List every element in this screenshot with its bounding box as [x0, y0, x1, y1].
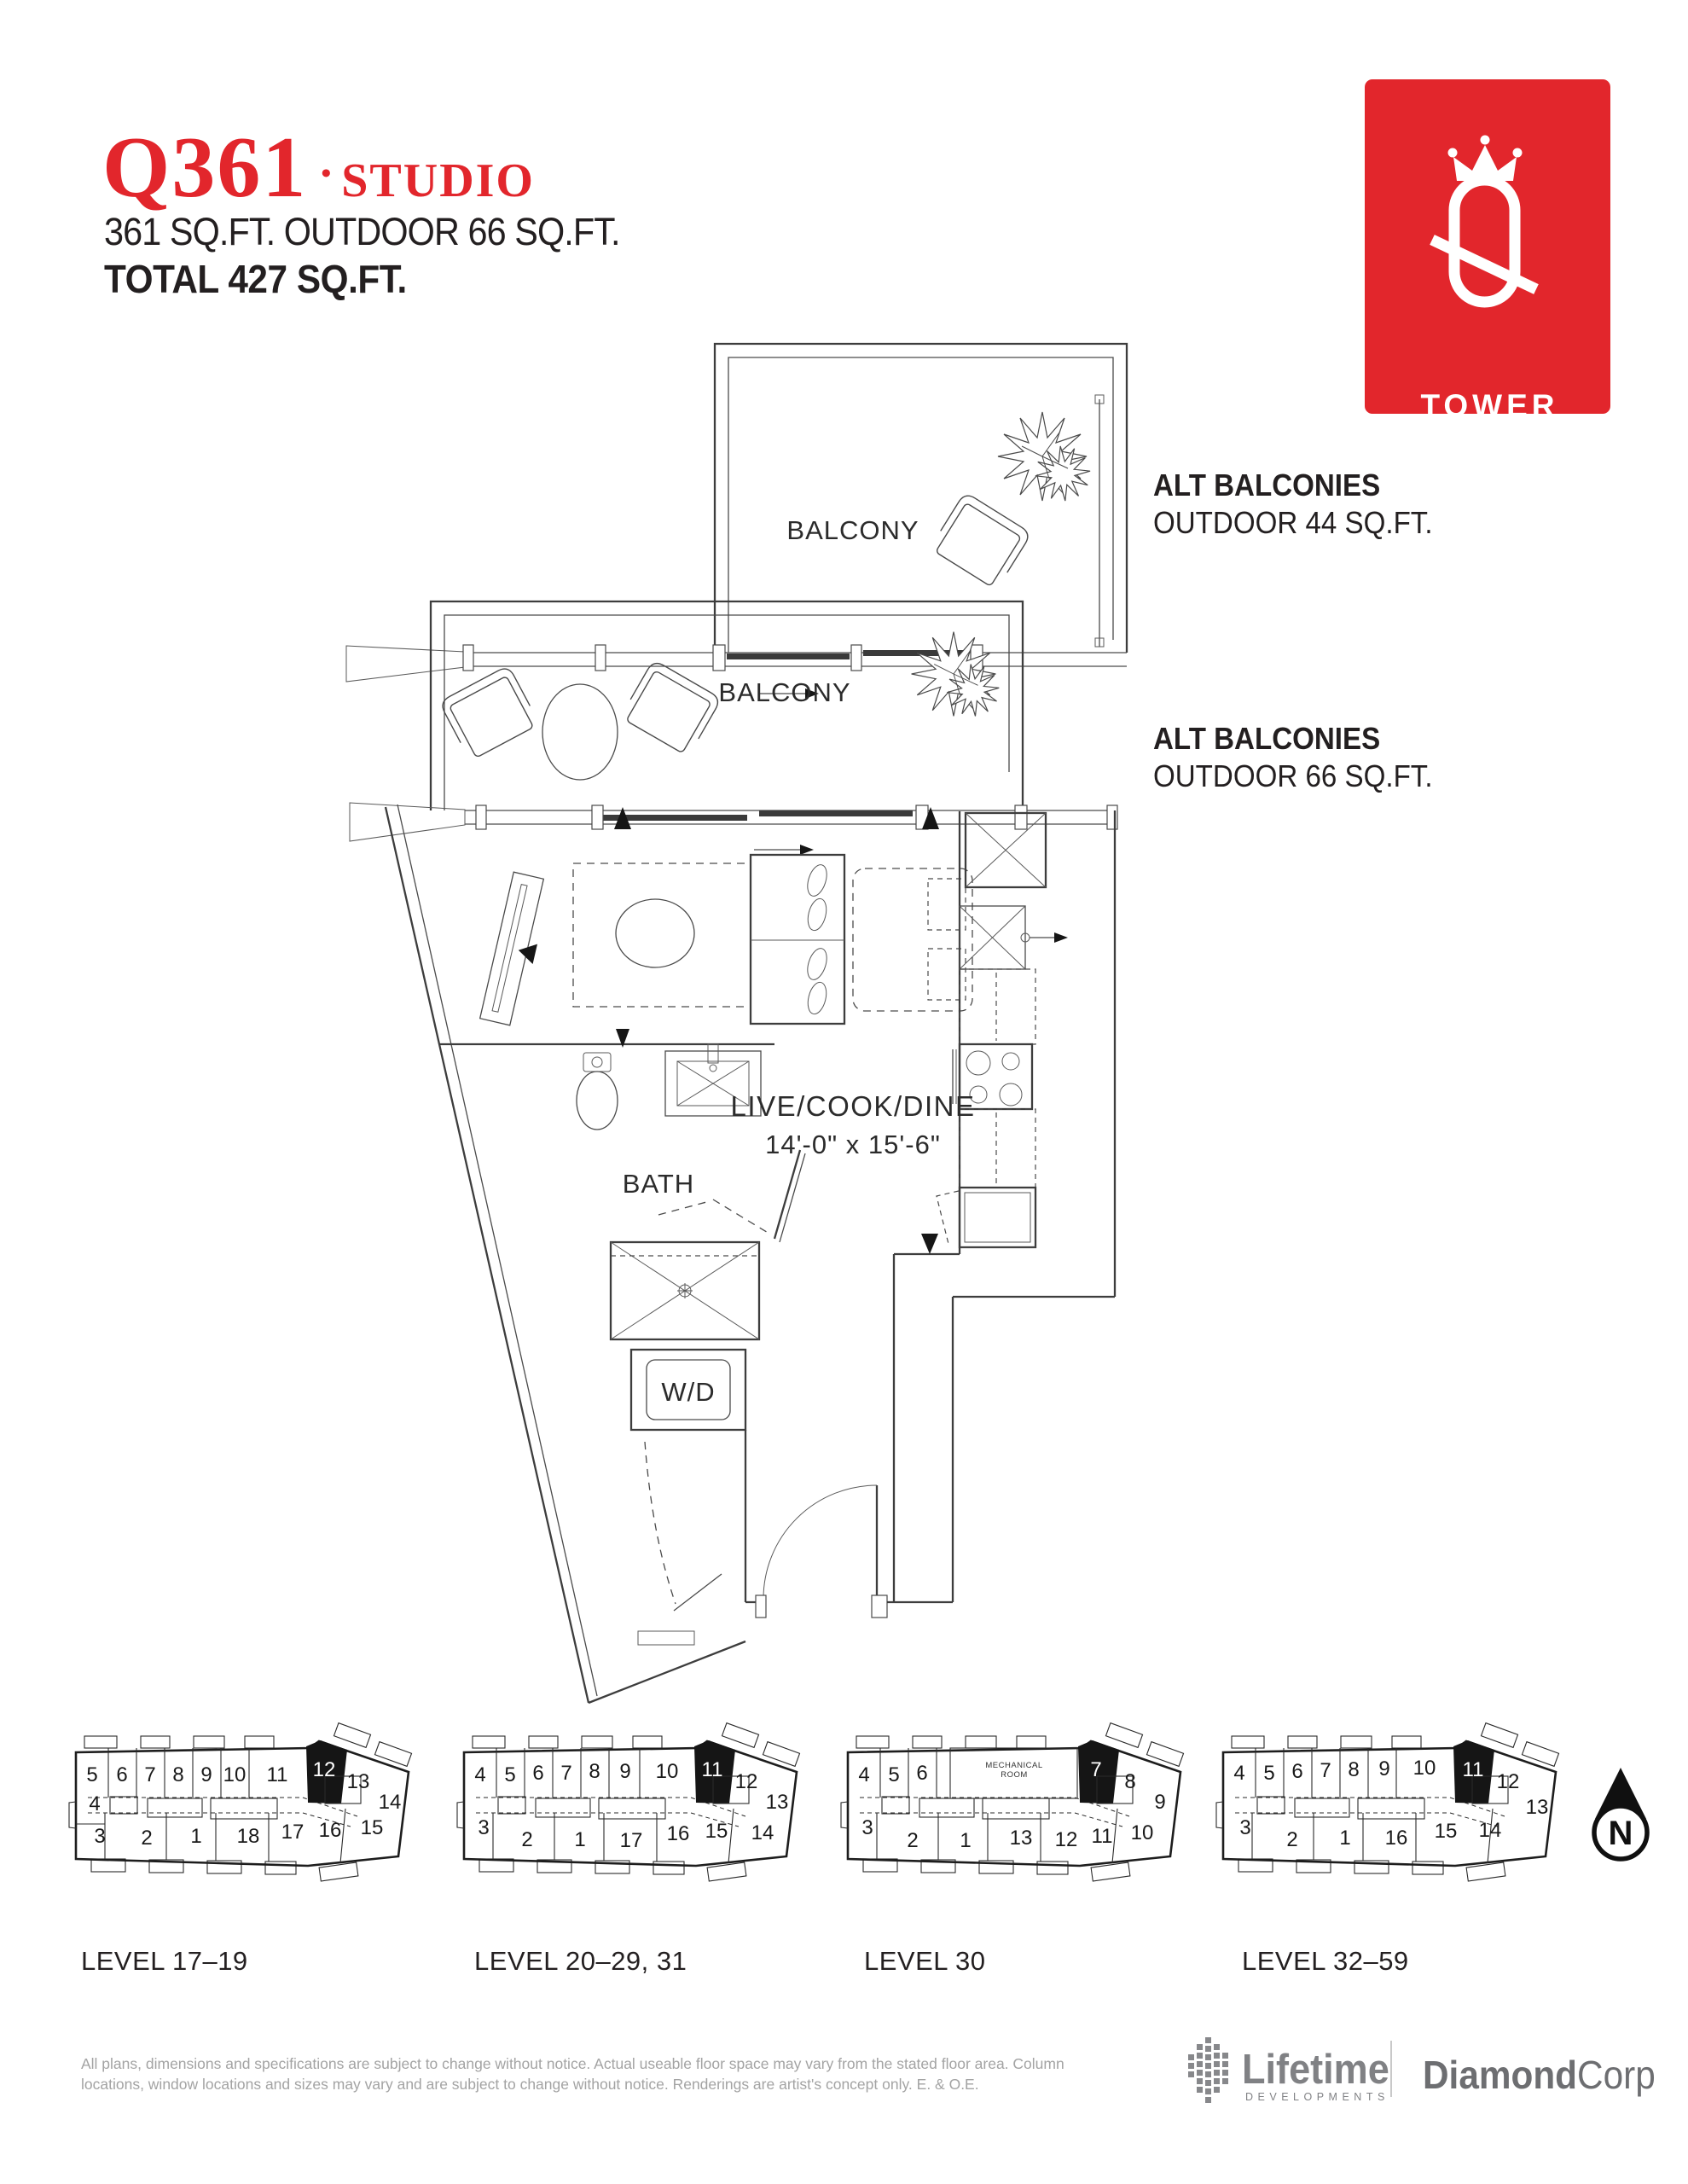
- svg-text:17: 17: [281, 1821, 305, 1844]
- svg-text:16: 16: [1385, 1827, 1408, 1850]
- keyplan-level-17-19: 5 6 7 8 9 10 11 12 13 14 4 3 2 1 18 17 1…: [69, 1723, 412, 1881]
- room-label: LIVE/COOK/DINE: [731, 1090, 976, 1122]
- svg-text:12: 12: [1055, 1828, 1078, 1851]
- svg-text:N: N: [1609, 1815, 1633, 1852]
- svg-text:1: 1: [190, 1825, 201, 1848]
- svg-text:3: 3: [1239, 1816, 1250, 1839]
- svg-text:11: 11: [1092, 1825, 1113, 1848]
- highlighted-unit: 11: [1463, 1758, 1484, 1781]
- qtower-crest-icon: [1365, 79, 1610, 414]
- svg-text:5: 5: [504, 1763, 515, 1786]
- svg-text:6: 6: [916, 1762, 927, 1785]
- svg-text:2: 2: [907, 1829, 918, 1852]
- svg-text:7: 7: [144, 1763, 155, 1786]
- level-label-3: LEVEL 30: [864, 1946, 985, 1976]
- alt-balcony-44-diagram: BALCONY: [346, 344, 1127, 699]
- alt-balcony-66-diagram: BALCONY: [350, 601, 1117, 855]
- level-label-4: LEVEL 32–59: [1242, 1946, 1409, 1976]
- laundry-label: W/D: [661, 1377, 715, 1407]
- svg-text:8: 8: [172, 1763, 183, 1786]
- svg-text:4: 4: [89, 1792, 100, 1815]
- svg-text:2: 2: [141, 1827, 152, 1850]
- svg-text:8: 8: [1348, 1758, 1359, 1781]
- svg-text:9: 9: [200, 1763, 212, 1786]
- mech-room-label: MECHANICAL: [985, 1761, 1042, 1770]
- svg-text:4: 4: [474, 1763, 485, 1786]
- svg-text:14: 14: [379, 1791, 402, 1814]
- highlighted-unit: 11: [702, 1758, 723, 1781]
- balcony-label-top: BALCONY: [786, 515, 919, 545]
- floorplan-sheet: BALCONY BALCONY: [0, 0, 1688, 2184]
- svg-text:14: 14: [751, 1821, 774, 1844]
- keyplan-level-30: MECHANICAL ROOM 4 5 6 7 8 9 3 2 1 13 12 …: [841, 1723, 1184, 1881]
- area-line: 361 SQ.FT. OUTDOOR 66 SQ.FT.: [104, 210, 620, 254]
- svg-text:ROOM: ROOM: [1001, 1770, 1028, 1780]
- chair-icon: [439, 665, 540, 761]
- tree-icon: [912, 632, 1008, 725]
- disclaimer-line-2: locations, window locations and sizes ma…: [81, 2075, 1164, 2095]
- disclaimer: All plans, dimensions and specifications…: [81, 2054, 1164, 2094]
- svg-text:7: 7: [1320, 1759, 1331, 1782]
- svg-text:15: 15: [705, 1820, 728, 1843]
- chair-icon: [930, 492, 1031, 590]
- svg-text:14: 14: [1479, 1819, 1502, 1842]
- svg-text:16: 16: [667, 1822, 690, 1845]
- slider-arrow-icon: [800, 845, 814, 855]
- svg-text:16: 16: [319, 1819, 342, 1842]
- svg-text:4: 4: [858, 1763, 869, 1786]
- svg-text:10: 10: [1413, 1757, 1436, 1780]
- keyplan-level-20-29-31: 4 5 6 7 8 9 10 11 12 13 3 2 1 17 16 15 1…: [457, 1723, 800, 1881]
- svg-text:13: 13: [1526, 1796, 1549, 1819]
- diamondcorp-logo: DiamondCorp: [1423, 2052, 1656, 2098]
- alt-balconies-44-label: ALT BALCONIES OUTDOOR 44 SQ.FT.: [1153, 467, 1433, 542]
- svg-text:15: 15: [1435, 1820, 1458, 1843]
- svg-text:4: 4: [1233, 1762, 1244, 1785]
- svg-text:10: 10: [223, 1763, 247, 1786]
- alt-balconies-66-label: ALT BALCONIES OUTDOOR 66 SQ.FT.: [1153, 720, 1433, 795]
- svg-text:15: 15: [361, 1816, 384, 1839]
- level-label-2: LEVEL 20–29, 31: [474, 1946, 687, 1976]
- svg-text:18: 18: [237, 1825, 260, 1848]
- svg-text:1: 1: [1339, 1827, 1350, 1850]
- svg-text:6: 6: [532, 1762, 543, 1785]
- svg-text:1: 1: [574, 1828, 585, 1851]
- unit-type: STUDIO: [341, 154, 535, 207]
- svg-text:2: 2: [521, 1828, 532, 1851]
- footer-divider: [1390, 2041, 1392, 2097]
- disclaimer-line-1: All plans, dimensions and specifications…: [81, 2054, 1164, 2075]
- north-arrow-icon: N: [1594, 1768, 1647, 1859]
- lifetime-sub-label: DEVELOPMENTS: [1245, 2091, 1389, 2103]
- page-title: Q361•STUDIO: [102, 118, 535, 218]
- svg-text:12: 12: [1497, 1770, 1520, 1793]
- svg-text:2: 2: [1286, 1828, 1297, 1851]
- svg-text:8: 8: [1124, 1770, 1135, 1793]
- svg-text:5: 5: [1263, 1762, 1274, 1785]
- svg-text:5: 5: [86, 1763, 97, 1786]
- svg-text:10: 10: [656, 1760, 679, 1783]
- svg-text:8: 8: [589, 1760, 600, 1783]
- level-label-1: LEVEL 17–19: [81, 1946, 248, 1976]
- svg-text:17: 17: [620, 1829, 643, 1852]
- lifetime-logo: Lifetime: [1242, 2046, 1389, 2094]
- svg-text:13: 13: [1010, 1827, 1033, 1850]
- svg-text:6: 6: [1291, 1760, 1302, 1783]
- svg-text:9: 9: [1378, 1757, 1389, 1780]
- keyplan-level-32-59: 4 5 6 7 8 9 10 11 12 13 3 2 1 16 15 14: [1216, 1723, 1559, 1881]
- highlighted-unit: 12: [313, 1758, 336, 1781]
- svg-text:3: 3: [478, 1816, 489, 1839]
- svg-text:13: 13: [766, 1791, 789, 1814]
- svg-text:7: 7: [560, 1762, 571, 1785]
- balcony-label-main: BALCONY: [718, 677, 850, 707]
- svg-text:9: 9: [1154, 1791, 1165, 1814]
- svg-text:13: 13: [347, 1770, 370, 1793]
- svg-text:9: 9: [619, 1760, 630, 1783]
- chair-icon: [620, 659, 722, 757]
- svg-text:1: 1: [960, 1829, 971, 1852]
- tv-panel: [480, 872, 552, 1027]
- main-unit-plan: LIVE/COOK/DINE 14'-0" x 15'-6" BATH W/D: [386, 804, 1115, 1703]
- svg-text:10: 10: [1131, 1821, 1154, 1844]
- title-dot: •: [307, 158, 341, 189]
- unit-code: Q361: [102, 119, 307, 216]
- svg-text:11: 11: [267, 1763, 288, 1786]
- tower-wordmark: TOWER: [1365, 388, 1610, 424]
- svg-text:5: 5: [888, 1763, 899, 1786]
- svg-text:12: 12: [735, 1770, 758, 1793]
- svg-text:6: 6: [116, 1763, 127, 1786]
- bath-label: BATH: [623, 1169, 694, 1199]
- svg-text:3: 3: [861, 1816, 873, 1839]
- faucet-arrow-icon: [1054, 932, 1068, 943]
- total-area-line: TOTAL 427 SQ.FT.: [104, 256, 407, 302]
- room-dims: 14'-0" x 15'-6": [765, 1130, 941, 1159]
- highlighted-unit: 7: [1090, 1758, 1101, 1781]
- tree-icon: [998, 412, 1099, 510]
- building-dots-icon: [1188, 2036, 1238, 2104]
- svg-text:3: 3: [94, 1825, 105, 1848]
- qtower-logo: TOWER: [1365, 79, 1610, 414]
